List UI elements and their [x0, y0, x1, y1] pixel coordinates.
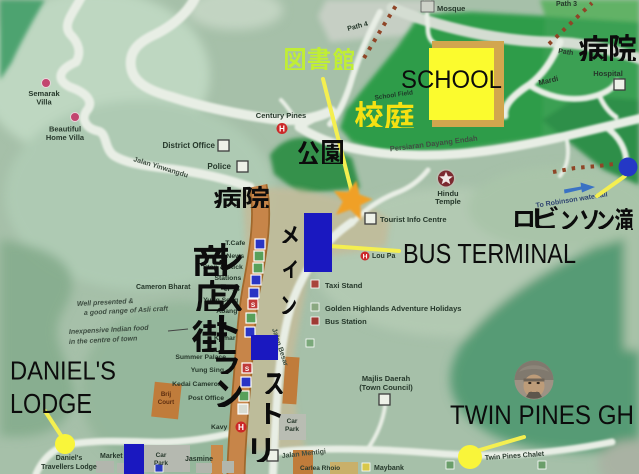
svg-text:Brij: Brij — [161, 391, 172, 398]
svg-text:Kavy: Kavy — [211, 424, 227, 431]
svg-text:Court: Court — [158, 399, 175, 406]
svg-text:Path 3: Path 3 — [556, 1, 577, 8]
svg-text:Post Office: Post Office — [188, 395, 224, 402]
svg-text:District Office: District Office — [163, 141, 216, 150]
svg-text:Carlea Rhoio: Carlea Rhoio — [300, 465, 340, 472]
svg-text:Police: Police — [207, 162, 231, 171]
svg-text:Park: Park — [285, 426, 299, 433]
svg-text:Car: Car — [156, 452, 167, 459]
svg-text:Cameron Bharat: Cameron Bharat — [136, 284, 191, 291]
svg-text:Temple: Temple — [435, 197, 461, 206]
svg-text:Villa: Villa — [36, 98, 52, 107]
svg-text:T.Cafe: T.Cafe — [225, 240, 245, 247]
svg-text:(Town Council): (Town Council) — [359, 383, 413, 392]
svg-text:Yung Sing: Yung Sing — [191, 367, 224, 374]
svg-text:Maybank: Maybank — [374, 465, 404, 472]
svg-text:Majlis Daerah: Majlis Daerah — [362, 374, 411, 383]
svg-text:TWIN PINES GH: TWIN PINES GH — [450, 400, 634, 430]
svg-text:Tourist Info Centre: Tourist Info Centre — [380, 215, 447, 224]
svg-text:Century Pines: Century Pines — [256, 111, 306, 120]
svg-text:DANIEL'S: DANIEL'S — [10, 356, 116, 386]
svg-text:Car: Car — [287, 418, 298, 425]
svg-text:S: S — [251, 302, 256, 309]
svg-text:Hospital: Hospital — [593, 69, 623, 78]
svg-text:Lou Pa: Lou Pa — [372, 253, 395, 260]
svg-text:H: H — [279, 125, 285, 134]
svg-text:S: S — [245, 366, 250, 373]
svg-text:Jasmine: Jasmine — [185, 456, 213, 463]
svg-text:H: H — [238, 423, 244, 432]
svg-text:Taxi Stand: Taxi Stand — [325, 281, 363, 290]
svg-text:Park: Park — [154, 460, 168, 467]
svg-text:H: H — [363, 253, 368, 260]
svg-text:Bus Station: Bus Station — [325, 317, 367, 326]
svg-text:Mosque: Mosque — [437, 4, 465, 13]
svg-text:Travellers Lodge: Travellers Lodge — [41, 464, 97, 471]
svg-text:Stations: Stations — [214, 275, 241, 282]
svg-text:Golden Highlands Adventure Hol: Golden Highlands Adventure Holidays — [325, 304, 461, 313]
svg-text:Daniel's: Daniel's — [56, 455, 83, 462]
svg-text:Market: Market — [100, 453, 123, 460]
svg-text:Kedai Cameron: Kedai Cameron — [172, 381, 222, 388]
svg-text:Home Villa: Home Villa — [46, 133, 85, 142]
svg-text:BUS TERMINAL: BUS TERMINAL — [403, 238, 576, 269]
svg-text:SCHOOL: SCHOOL — [401, 66, 502, 94]
svg-text:LODGE: LODGE — [10, 388, 92, 419]
svg-text:News: News — [226, 253, 244, 260]
